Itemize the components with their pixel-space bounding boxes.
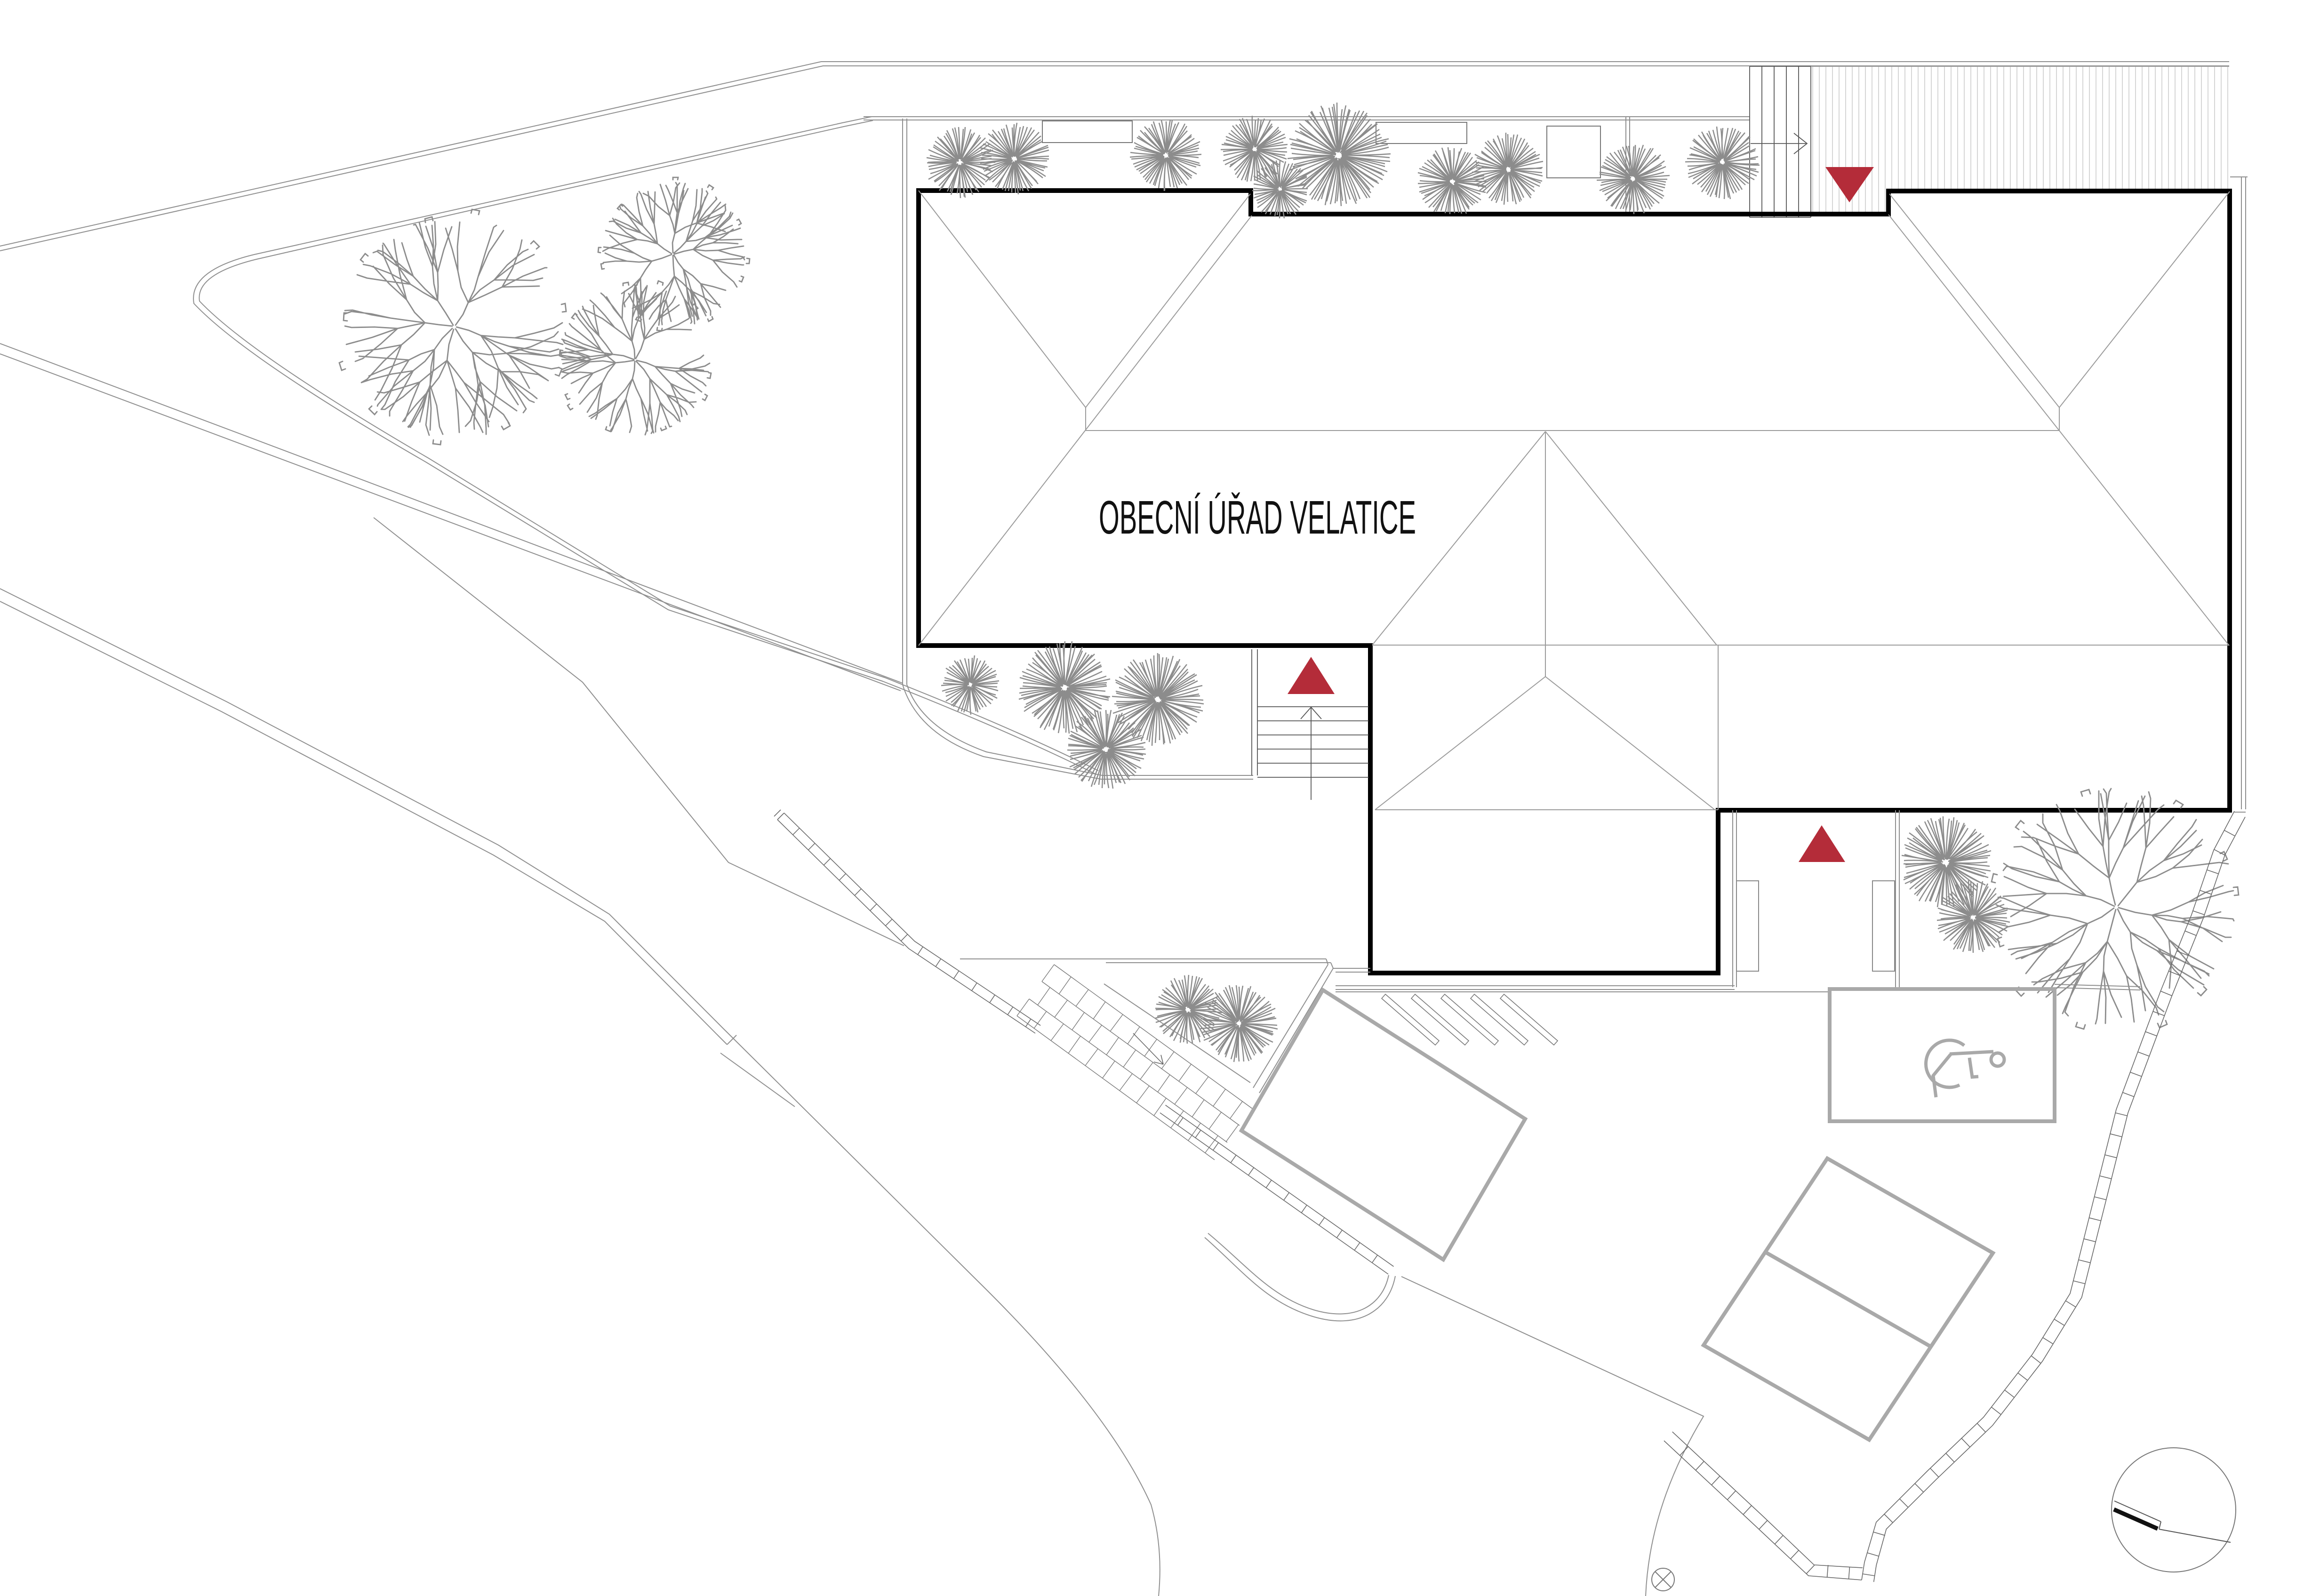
svg-text:OBECNÍ ÚŘAD VELATICE: OBECNÍ ÚŘAD VELATICE [1099, 491, 1416, 544]
